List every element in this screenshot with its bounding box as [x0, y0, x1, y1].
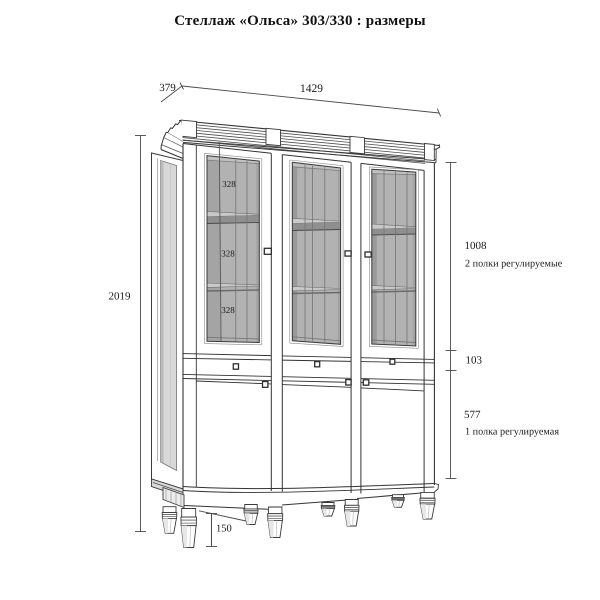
svg-text:1008: 1008	[465, 240, 488, 252]
svg-text:328: 328	[221, 248, 235, 258]
svg-text:328: 328	[222, 179, 236, 189]
svg-text:2019: 2019	[109, 291, 132, 303]
svg-text:2 полки регулируемые: 2 полки регулируемые	[465, 259, 563, 270]
svg-text:103: 103	[466, 355, 483, 367]
svg-text:328: 328	[221, 305, 235, 315]
svg-text:150: 150	[216, 524, 232, 535]
svg-text:379: 379	[159, 82, 176, 94]
svg-text:1429: 1429	[300, 83, 323, 95]
svg-text:1 полка регулируемая: 1 полка регулируемая	[465, 427, 559, 438]
svg-text:577: 577	[464, 409, 481, 421]
